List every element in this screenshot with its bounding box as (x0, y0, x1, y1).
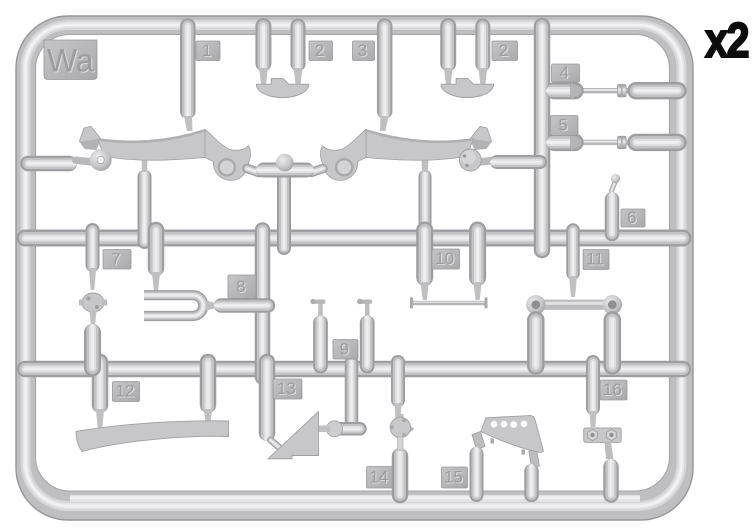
svg-text:10: 10 (435, 249, 454, 268)
svg-text:x2: x2 (705, 13, 748, 68)
svg-text:2: 2 (499, 41, 508, 60)
svg-text:16: 16 (603, 380, 622, 399)
svg-text:9: 9 (340, 339, 349, 358)
svg-text:8: 8 (236, 277, 245, 296)
svg-text:1: 1 (202, 41, 211, 60)
svg-text:4: 4 (560, 63, 569, 82)
svg-text:14: 14 (369, 467, 388, 486)
svg-text:3: 3 (358, 41, 367, 60)
svg-text:Wa: Wa (47, 42, 94, 78)
svg-text:15: 15 (444, 468, 463, 487)
svg-text:12: 12 (115, 382, 134, 401)
svg-text:5: 5 (558, 116, 567, 135)
svg-text:13: 13 (277, 379, 296, 398)
svg-text:7: 7 (111, 249, 120, 268)
svg-text:2: 2 (315, 41, 324, 60)
svg-text:6: 6 (627, 208, 636, 227)
svg-text:11: 11 (586, 250, 604, 269)
